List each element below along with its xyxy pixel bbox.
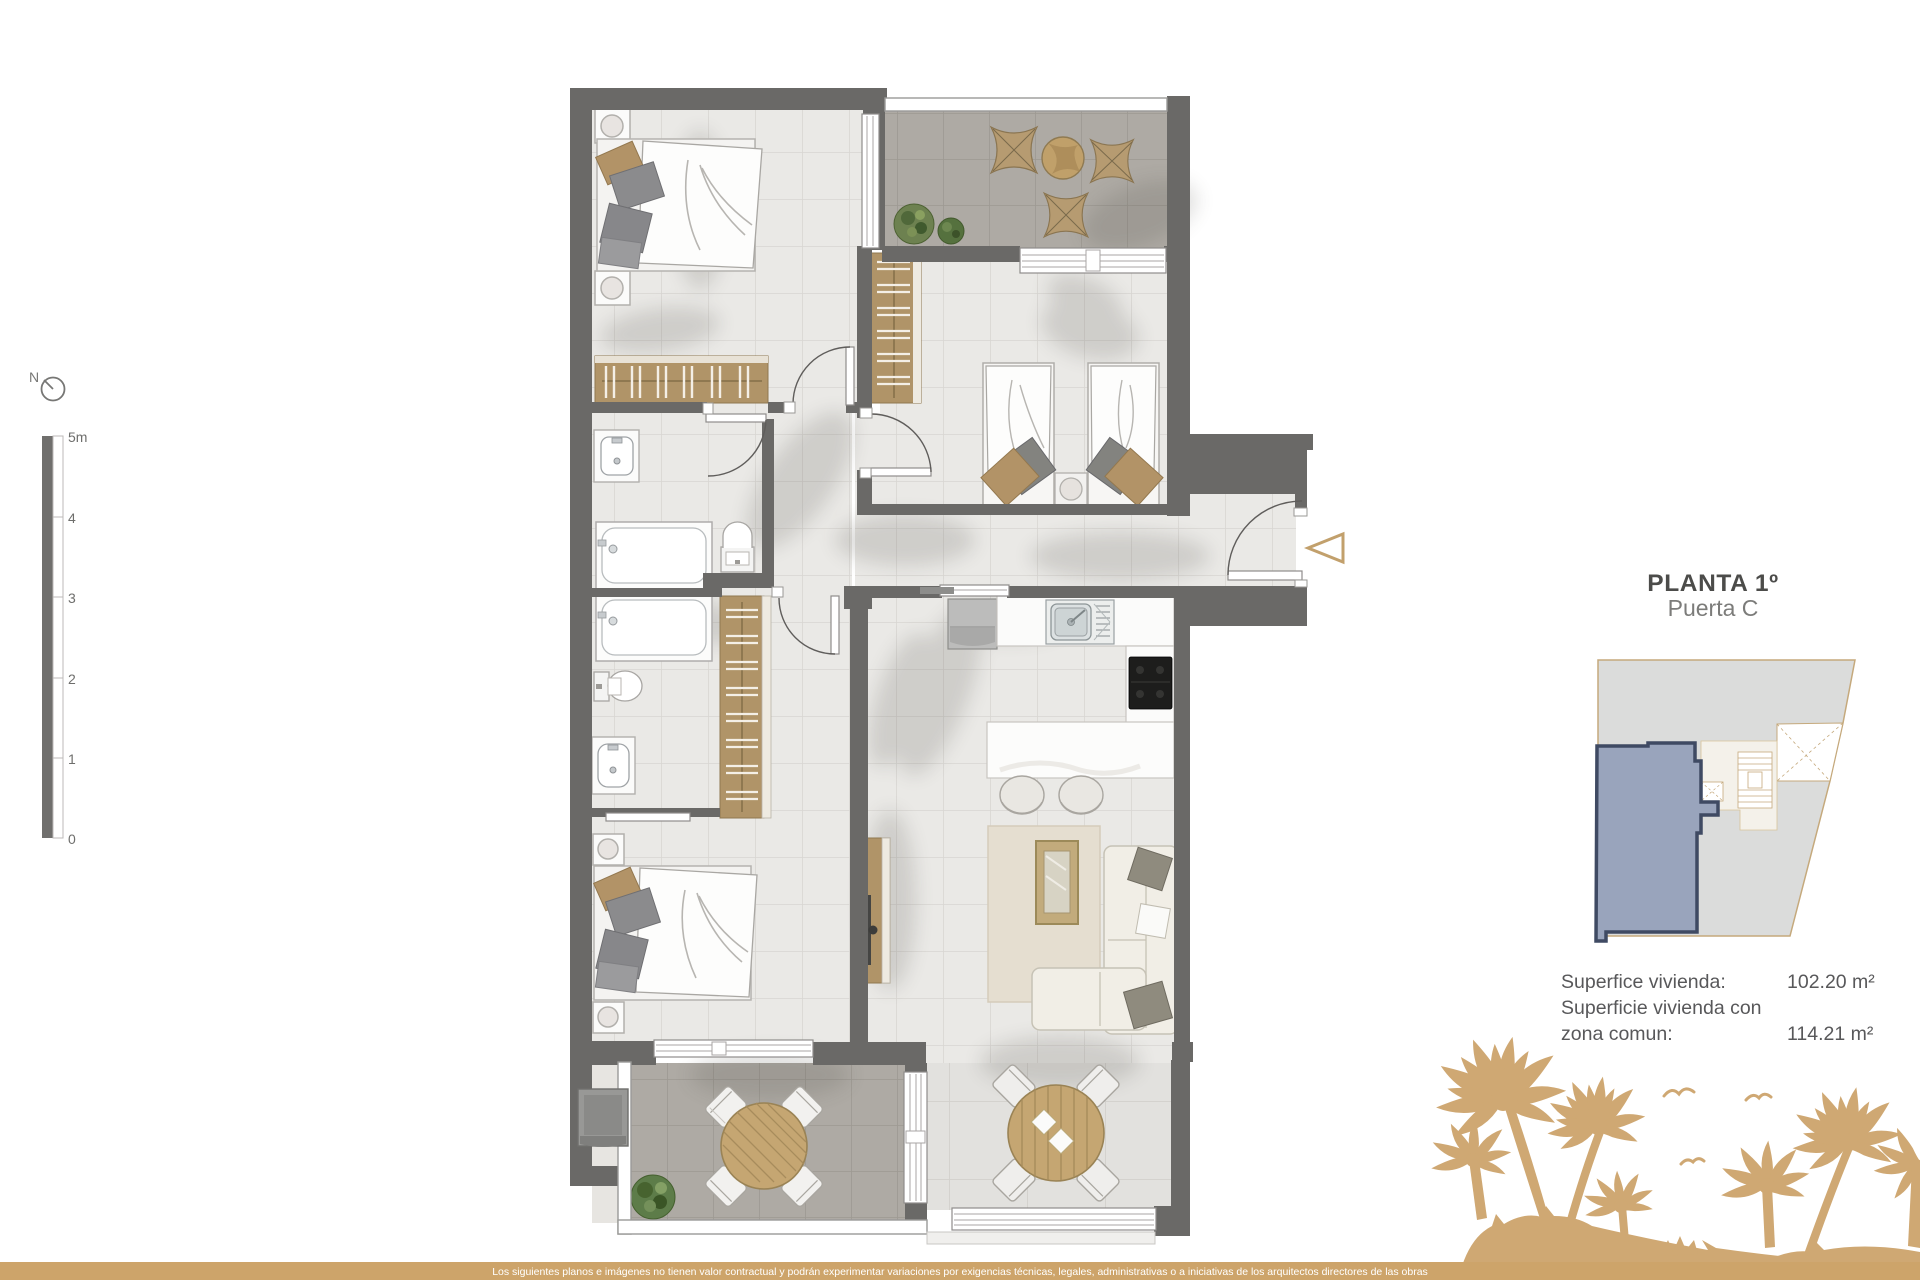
svg-text:5m: 5m bbox=[68, 429, 87, 445]
svg-text:PLANTA 1º: PLANTA 1º bbox=[1647, 570, 1778, 597]
svg-text:zona comun:: zona comun: bbox=[1561, 1023, 1673, 1045]
svg-text:102.20 m²: 102.20 m² bbox=[1787, 971, 1875, 993]
svg-text:3: 3 bbox=[68, 590, 76, 606]
svg-text:Superfice vivienda:: Superfice vivienda: bbox=[1561, 971, 1726, 993]
svg-text:Puerta C: Puerta C bbox=[1668, 595, 1759, 621]
svg-text:Los siguientes planos e imágen: Los siguientes planos e imágenes no tien… bbox=[492, 1266, 1428, 1278]
svg-text:2: 2 bbox=[68, 671, 76, 687]
svg-text:1: 1 bbox=[68, 751, 76, 767]
svg-text:114.21 m²: 114.21 m² bbox=[1787, 1023, 1874, 1045]
svg-text:N: N bbox=[29, 369, 39, 385]
svg-text:0: 0 bbox=[68, 831, 76, 847]
svg-text:Superficie vivienda con: Superficie vivienda con bbox=[1561, 997, 1762, 1019]
svg-text:4: 4 bbox=[68, 510, 76, 526]
